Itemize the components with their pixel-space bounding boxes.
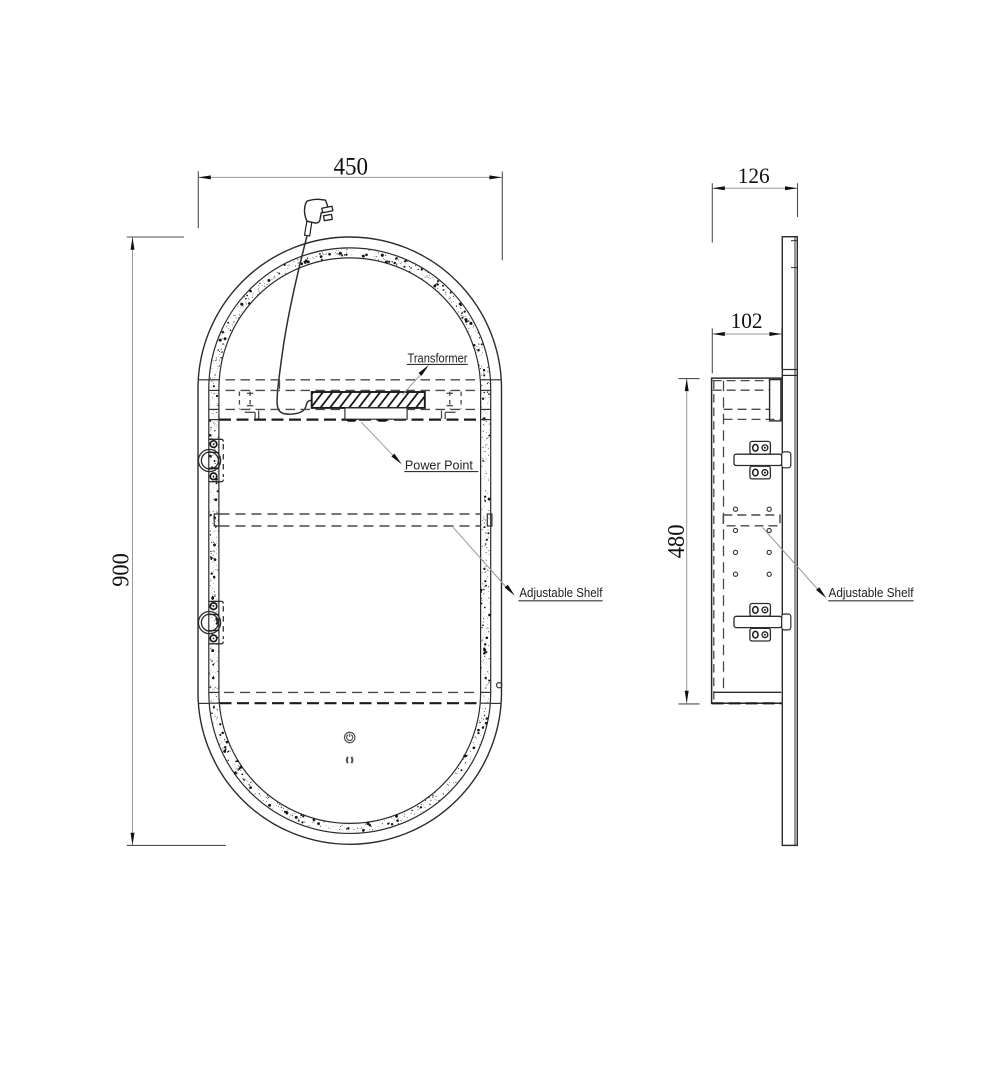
svg-text:Transformer: Transformer (408, 350, 469, 365)
svg-text:126: 126 (738, 163, 770, 188)
svg-text:480: 480 (663, 524, 690, 558)
svg-text:900: 900 (108, 553, 134, 587)
svg-text:450: 450 (334, 153, 369, 180)
svg-text:Adjustable Shelf: Adjustable Shelf (829, 585, 914, 600)
svg-text:Power Point: Power Point (405, 458, 473, 473)
svg-text:Adjustable Shelf: Adjustable Shelf (519, 585, 602, 600)
svg-text:102: 102 (731, 308, 763, 333)
